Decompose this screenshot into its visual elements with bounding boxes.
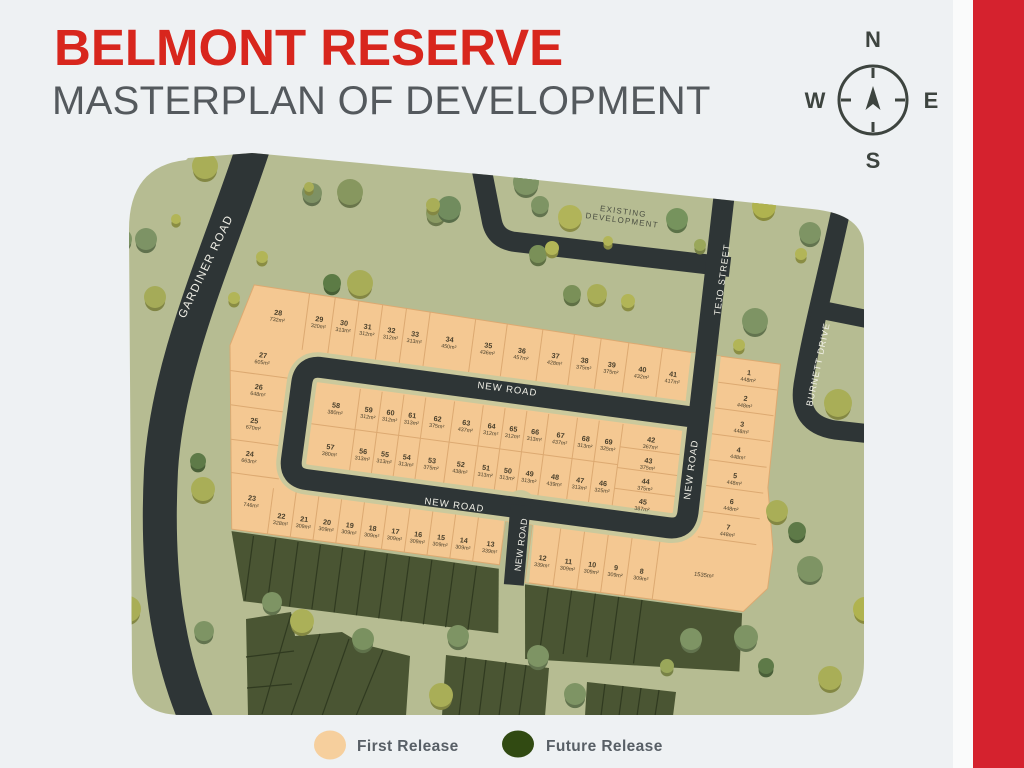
- svg-text:67: 67: [556, 430, 565, 440]
- svg-text:58: 58: [331, 400, 340, 410]
- svg-text:41: 41: [669, 369, 678, 379]
- svg-text:Future Release: Future Release: [546, 738, 663, 755]
- svg-text:12: 12: [538, 553, 547, 563]
- svg-text:43: 43: [644, 456, 653, 466]
- svg-text:29: 29: [315, 314, 324, 324]
- svg-text:53: 53: [427, 456, 436, 466]
- svg-text:63: 63: [462, 418, 471, 428]
- svg-text:61: 61: [408, 410, 417, 420]
- svg-text:46: 46: [598, 478, 607, 488]
- svg-text:18: 18: [368, 523, 377, 533]
- svg-text:48: 48: [550, 472, 559, 482]
- svg-text:64: 64: [487, 421, 496, 431]
- svg-text:11: 11: [564, 556, 573, 566]
- svg-text:68: 68: [581, 434, 590, 444]
- svg-text:49: 49: [525, 469, 534, 479]
- svg-text:57: 57: [326, 442, 335, 452]
- svg-text:69: 69: [604, 437, 613, 447]
- svg-text:50: 50: [503, 466, 512, 476]
- svg-text:21: 21: [300, 514, 309, 524]
- svg-text:N: N: [865, 27, 881, 52]
- svg-text:23: 23: [247, 493, 256, 503]
- svg-text:28: 28: [274, 308, 283, 318]
- svg-text:65: 65: [509, 424, 518, 434]
- svg-text:39: 39: [607, 360, 616, 370]
- svg-text:30: 30: [339, 318, 348, 328]
- svg-text:19: 19: [345, 520, 354, 530]
- svg-text:60: 60: [386, 408, 395, 418]
- svg-text:MASTERPLAN OF DEVELOPMENT: MASTERPLAN OF DEVELOPMENT: [52, 79, 711, 123]
- svg-text:36: 36: [517, 346, 526, 356]
- svg-text:22: 22: [277, 511, 286, 521]
- svg-text:54: 54: [402, 452, 411, 462]
- svg-text:31: 31: [363, 322, 372, 332]
- svg-text:W: W: [805, 88, 826, 113]
- svg-text:E: E: [924, 88, 939, 113]
- svg-text:35: 35: [484, 340, 493, 350]
- svg-text:16: 16: [414, 529, 423, 539]
- svg-text:55: 55: [380, 449, 389, 459]
- svg-text:17: 17: [391, 526, 400, 536]
- svg-text:32: 32: [387, 325, 396, 335]
- svg-text:24: 24: [245, 449, 254, 459]
- svg-text:27: 27: [258, 350, 267, 360]
- svg-text:44: 44: [641, 476, 650, 486]
- svg-text:45: 45: [638, 497, 647, 507]
- svg-text:66: 66: [531, 427, 540, 437]
- svg-text:14: 14: [459, 535, 468, 545]
- svg-text:52: 52: [456, 459, 465, 469]
- svg-text:First Release: First Release: [357, 738, 459, 755]
- svg-text:34: 34: [445, 334, 454, 344]
- svg-text:37: 37: [551, 351, 560, 361]
- svg-text:59: 59: [364, 405, 373, 415]
- svg-text:15: 15: [436, 532, 445, 542]
- svg-text:33: 33: [411, 329, 420, 339]
- svg-text:26: 26: [254, 382, 263, 392]
- svg-text:42: 42: [647, 435, 656, 445]
- svg-text:38: 38: [580, 355, 589, 365]
- svg-text:62: 62: [433, 414, 442, 424]
- svg-text:20: 20: [322, 517, 331, 527]
- svg-text:25: 25: [250, 416, 259, 426]
- svg-text:47: 47: [576, 475, 585, 485]
- svg-text:51: 51: [482, 463, 491, 473]
- svg-text:BELMONT RESERVE: BELMONT RESERVE: [54, 19, 563, 76]
- svg-text:S: S: [866, 148, 881, 173]
- svg-text:40: 40: [638, 364, 647, 374]
- svg-text:10: 10: [588, 560, 597, 570]
- svg-text:13: 13: [486, 539, 495, 549]
- svg-text:56: 56: [359, 446, 368, 456]
